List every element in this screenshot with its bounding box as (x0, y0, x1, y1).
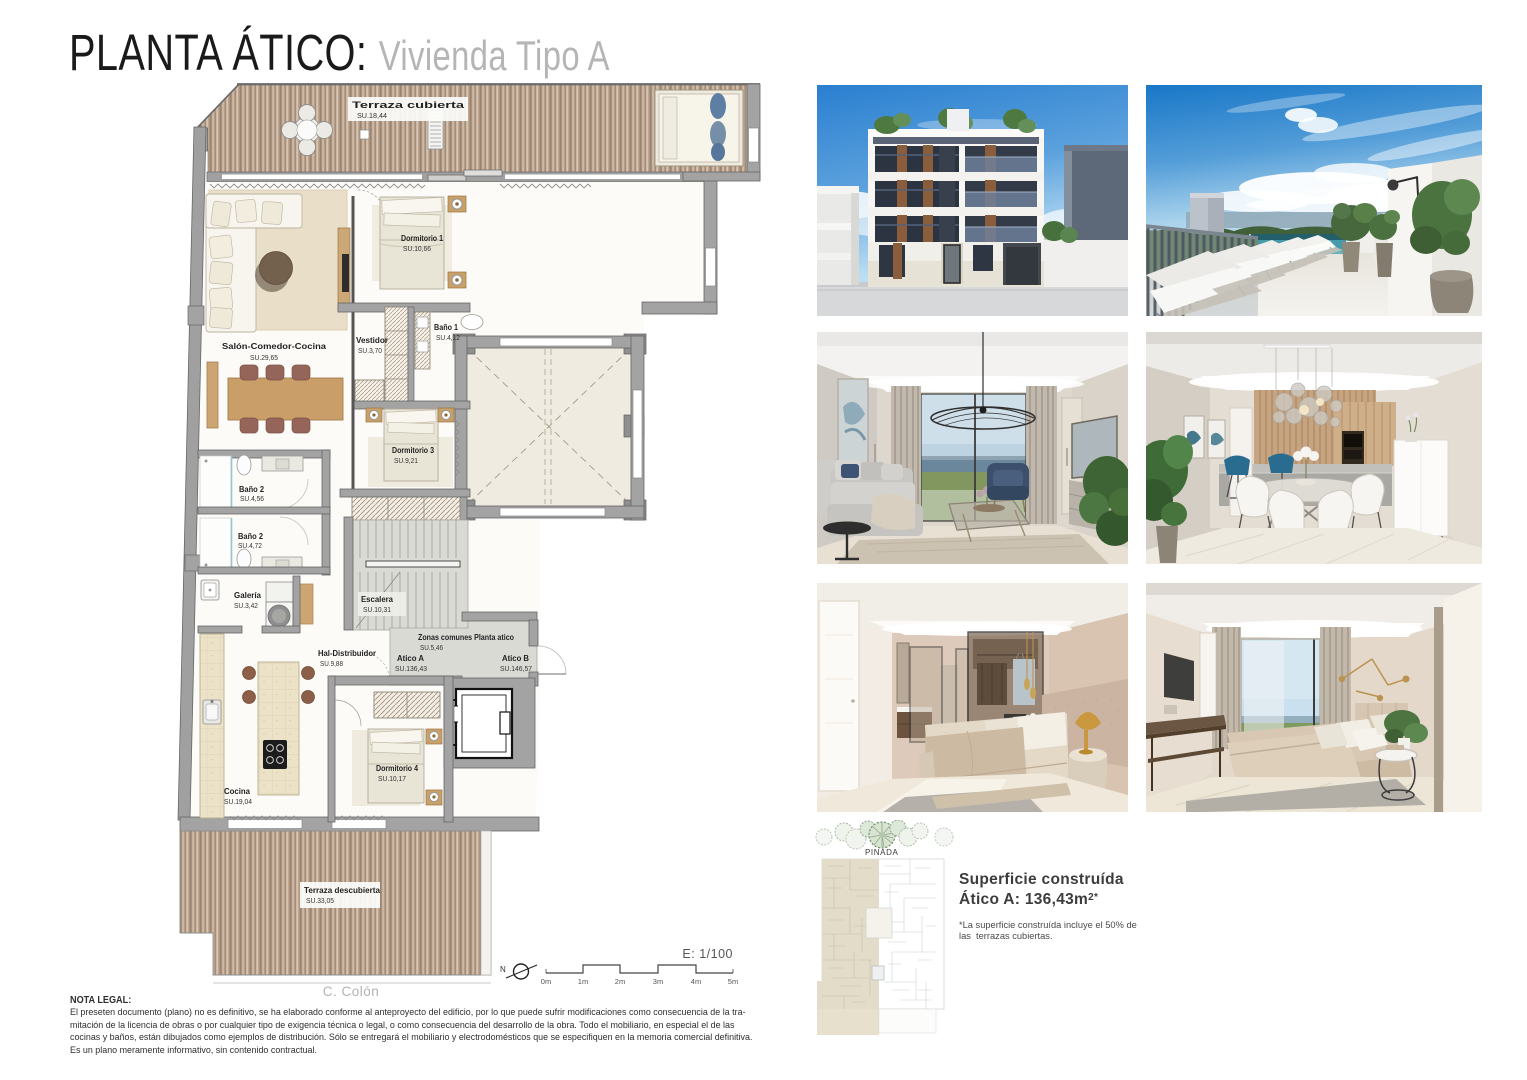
svg-text:SU.4,72: SU.4,72 (238, 543, 262, 550)
svg-text:Zonas comunes Planta atico: Zonas comunes Planta atico (418, 633, 514, 642)
svg-text:Vestidor: Vestidor (356, 336, 388, 345)
svg-text:Dormitorio 4: Dormitorio 4 (376, 764, 418, 773)
svg-text:SU.136,43: SU.136,43 (395, 666, 427, 673)
svg-text:SU.29,65: SU.29,65 (250, 355, 278, 362)
svg-text:SU.10,17: SU.10,17 (378, 776, 406, 783)
svg-text:Atico A: Atico A (397, 654, 424, 663)
svg-text:Hal-Distribuidor: Hal-Distribuidor (318, 649, 376, 658)
svg-text:Baño 2: Baño 2 (239, 485, 265, 494)
svg-text:SU.9,88: SU.9,88 (320, 661, 343, 668)
svg-text:SU.3,42: SU.3,42 (234, 603, 258, 610)
svg-text:SU.4,12: SU.4,12 (436, 335, 460, 342)
svg-text:Terraza descubierta: Terraza descubierta (304, 886, 381, 895)
svg-text:SU.19,04: SU.19,04 (224, 799, 252, 806)
svg-text:SU.18,44: SU.18,44 (357, 113, 387, 120)
svg-text:SU.9,21: SU.9,21 (394, 458, 418, 465)
svg-text:Terraza cubierta: Terraza cubierta (352, 100, 465, 111)
svg-text:E: 1/100: E: 1/100 (682, 947, 733, 961)
svg-text:3m: 3m (653, 977, 663, 986)
svg-text:1m: 1m (578, 977, 588, 986)
svg-text:Cocina: Cocina (224, 787, 251, 796)
svg-text:SU.10,66: SU.10,66 (403, 246, 431, 253)
svg-text:Galería: Galería (234, 591, 262, 600)
svg-text:4m: 4m (691, 977, 701, 986)
svg-text:SU.33,05: SU.33,05 (306, 898, 334, 905)
svg-text:2m: 2m (615, 977, 625, 986)
svg-text:Dormitorio 3: Dormitorio 3 (392, 446, 434, 455)
svg-text:Baño 1: Baño 1 (434, 323, 458, 332)
svg-text:Escalera: Escalera (361, 595, 394, 604)
svg-text:0m: 0m (541, 977, 551, 986)
svg-text:5m: 5m (728, 977, 738, 986)
svg-text:Baño 2: Baño 2 (238, 532, 264, 541)
svg-text:SU.3,70: SU.3,70 (358, 348, 382, 355)
svg-text:SU.10,31: SU.10,31 (363, 607, 391, 614)
svg-text:SU.4,56: SU.4,56 (240, 496, 264, 503)
svg-text:SU.146,57: SU.146,57 (500, 666, 532, 673)
svg-text:Atico B: Atico B (502, 654, 529, 663)
svg-text:Salón-Comedor-Cocina: Salón-Comedor-Cocina (222, 342, 327, 351)
svg-text:N: N (500, 965, 506, 974)
svg-text:SU.5,46: SU.5,46 (420, 645, 443, 652)
svg-text:Dormitorio 1: Dormitorio 1 (401, 234, 443, 243)
